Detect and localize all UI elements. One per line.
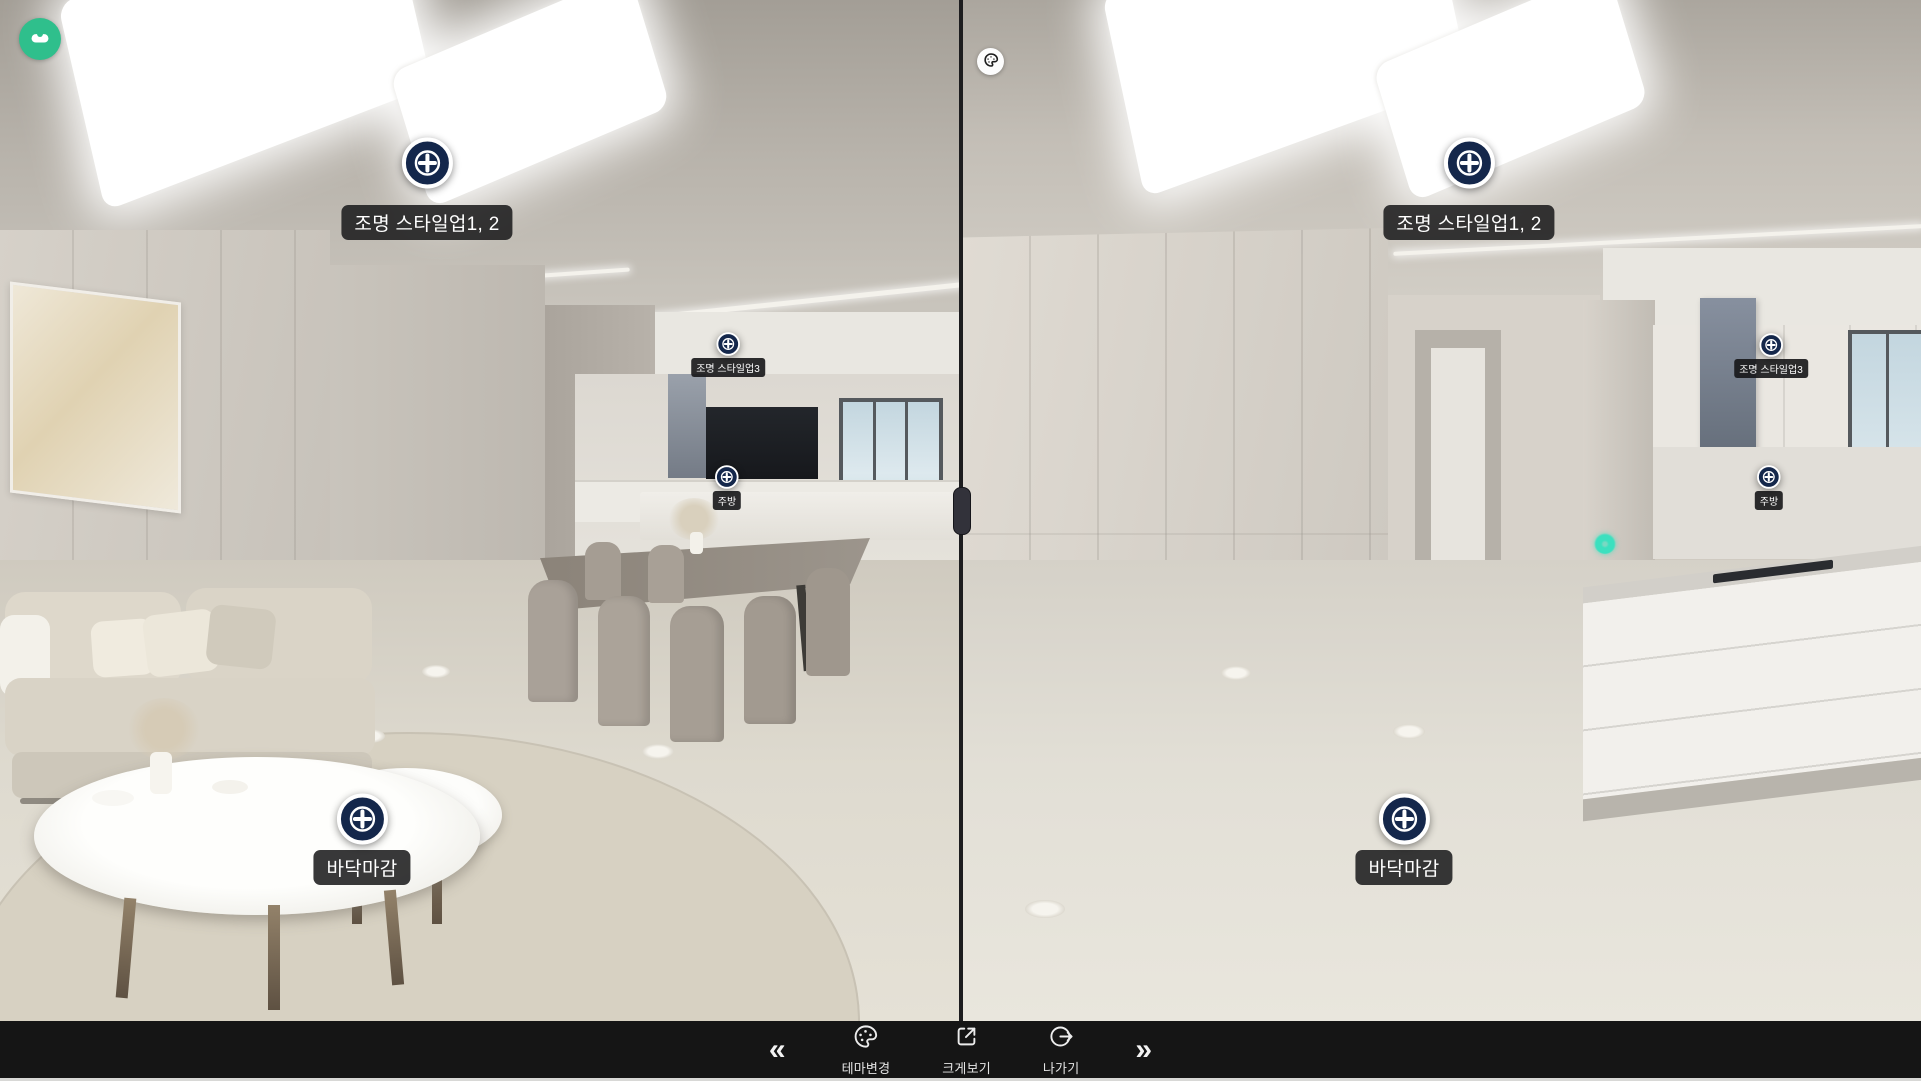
backsplash	[1653, 447, 1921, 559]
hotspot-label: 바닥마감	[1355, 850, 1452, 885]
bottom-toolbar: « 테마변경 크게보기	[0, 1021, 1921, 1078]
table-vase	[690, 532, 703, 554]
hotspot-kitchen[interactable]: 주방	[713, 465, 741, 510]
dried-flowers	[128, 698, 200, 760]
dining-chair	[744, 596, 796, 724]
hotspot-label: 바닥마감	[313, 850, 410, 885]
vr-view-toggle-button[interactable]	[19, 18, 61, 60]
floor-downlight	[642, 744, 674, 759]
plus-marker-icon	[1443, 137, 1495, 189]
scene-left-viewport[interactable]: 조명 스타일업1, 2 조명 스타일업3 주방 바닥마감	[0, 0, 959, 1021]
plus-marker-icon	[716, 332, 740, 356]
wall-artwork	[10, 282, 181, 514]
expand-icon	[953, 1023, 980, 1053]
hotspot-label: 주방	[713, 491, 741, 510]
hotspot-label: 조명 스타일업3	[1734, 359, 1808, 378]
floor-downlight	[422, 665, 450, 678]
toolbar-theme-change-button[interactable]: 테마변경	[842, 1023, 891, 1077]
plus-marker-icon	[1757, 465, 1781, 489]
palette-icon	[852, 1023, 879, 1053]
vr-goggles-icon	[27, 25, 53, 54]
table-leg	[268, 905, 280, 1010]
teal-selection-marker[interactable]	[1594, 532, 1616, 554]
hotspot-floor-finish[interactable]: 바닥마감	[1355, 793, 1452, 885]
logout-icon	[1048, 1023, 1075, 1053]
hotspot-label: 조명 스타일업1, 2	[1383, 205, 1554, 240]
hotspot-kitchen[interactable]: 주방	[1755, 465, 1783, 510]
next-page-button[interactable]: »	[1131, 1035, 1156, 1065]
hotspot-floor-finish[interactable]: 바닥마감	[313, 793, 410, 885]
toolbar-label: 크게보기	[942, 1058, 991, 1077]
dining-chair	[585, 542, 621, 600]
floor-downlight	[1221, 666, 1251, 680]
table-dish	[212, 780, 248, 794]
hotspot-label: 조명 스타일업1, 2	[341, 205, 512, 240]
plus-marker-icon	[1378, 793, 1430, 845]
scene-right-viewport[interactable]: 조명 스타일업1, 2 조명 스타일업3 주방 바닥마감	[963, 0, 1921, 1021]
divider-drag-handle[interactable]	[953, 487, 971, 535]
hotspot-label: 주방	[1755, 491, 1783, 510]
hotspot-lighting-main[interactable]: 조명 스타일업1, 2	[1383, 137, 1554, 240]
vase	[150, 752, 172, 794]
plus-marker-icon	[401, 137, 453, 189]
palette-icon	[983, 52, 999, 71]
plus-marker-icon	[715, 465, 739, 489]
hotspot-lighting-sub[interactable]: 조명 스타일업3	[691, 332, 765, 377]
coffee-table-large	[34, 757, 480, 915]
floor-downlight	[1393, 724, 1425, 739]
throw-pillow	[205, 604, 277, 671]
dining-chair	[806, 568, 850, 676]
prev-page-button[interactable]: «	[765, 1035, 790, 1065]
plus-marker-icon	[336, 793, 388, 845]
dining-chair	[670, 606, 724, 742]
hotspot-lighting-main[interactable]: 조명 스타일업1, 2	[341, 137, 512, 240]
range-hood	[668, 374, 706, 478]
dining-chair	[598, 596, 650, 726]
floor-downlight	[1025, 900, 1065, 918]
theme-palette-button[interactable]	[977, 48, 1004, 75]
plus-marker-icon	[1759, 333, 1783, 357]
split-compare-viewer: 조명 스타일업1, 2 조명 스타일업3 주방 바닥마감	[0, 0, 1921, 1081]
dining-chair	[648, 545, 684, 603]
hotspot-label: 조명 스타일업3	[691, 358, 765, 377]
hotspot-lighting-sub[interactable]: 조명 스타일업3	[1734, 333, 1808, 378]
kitchen-counter-run	[1583, 545, 1921, 852]
toolbar-enlarge-button[interactable]: 크게보기	[942, 1023, 991, 1077]
toolbar-exit-button[interactable]: 나가기	[1043, 1023, 1079, 1077]
dining-chair	[528, 580, 578, 702]
table-dish	[92, 790, 134, 806]
toolbar-label: 테마변경	[842, 1058, 891, 1077]
toolbar-label: 나가기	[1043, 1058, 1079, 1077]
